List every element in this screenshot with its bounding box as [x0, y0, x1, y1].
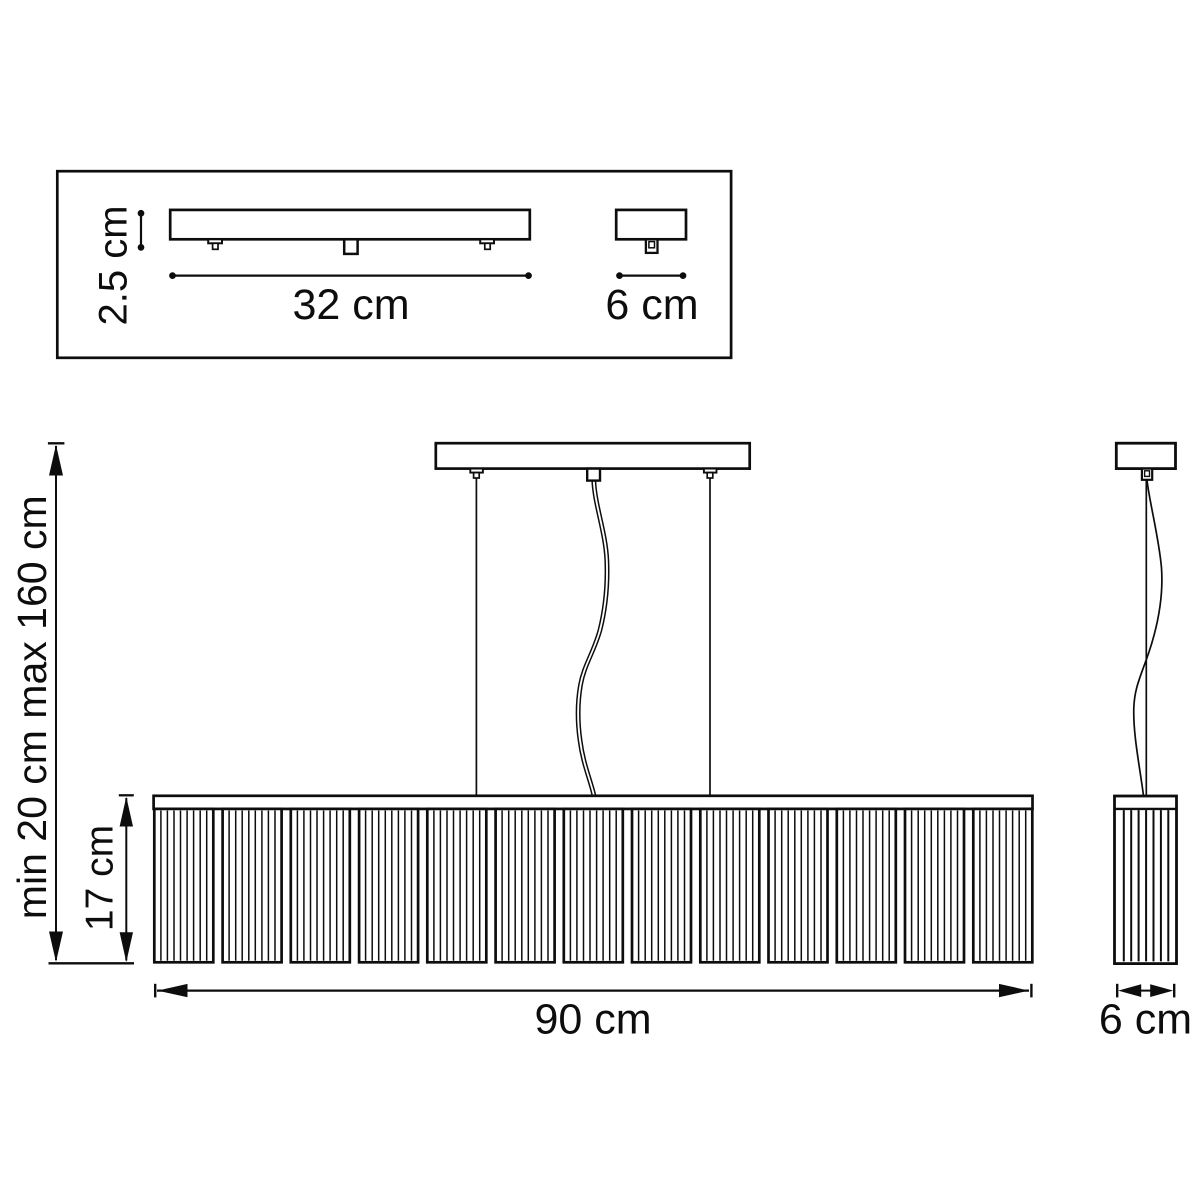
- svg-text:6 cm: 6 cm: [1099, 996, 1192, 1044]
- svg-text:17 cm: 17 cm: [79, 825, 122, 931]
- svg-text:2.5 cm: 2.5 cm: [92, 205, 136, 325]
- svg-text:min 20 cm max 160 cm: min 20 cm max 160 cm: [9, 495, 55, 919]
- svg-text:90 cm: 90 cm: [534, 996, 651, 1044]
- svg-text:32 cm: 32 cm: [292, 281, 409, 329]
- svg-text:6 cm: 6 cm: [605, 281, 698, 329]
